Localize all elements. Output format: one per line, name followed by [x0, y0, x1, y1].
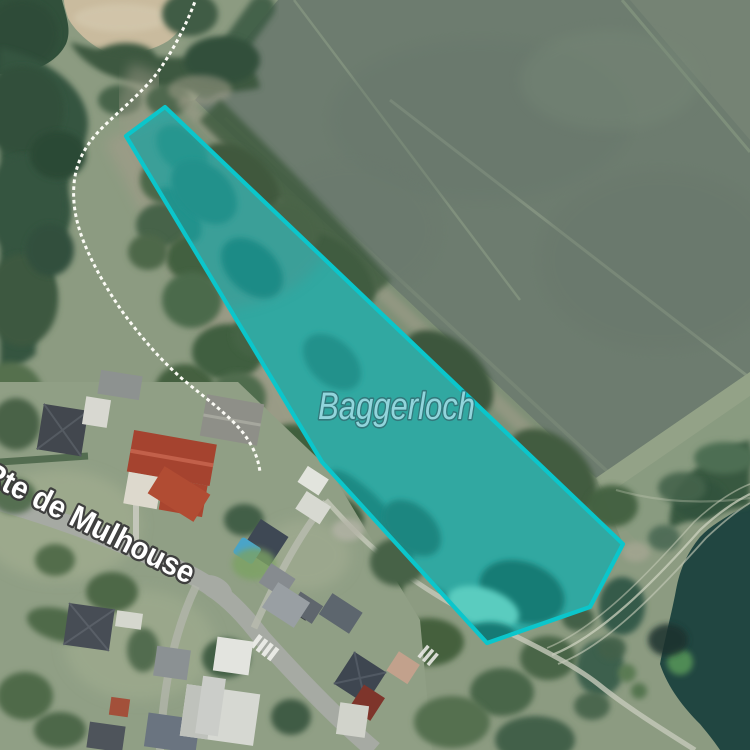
svg-text:Baggerloch: Baggerloch [318, 386, 475, 428]
